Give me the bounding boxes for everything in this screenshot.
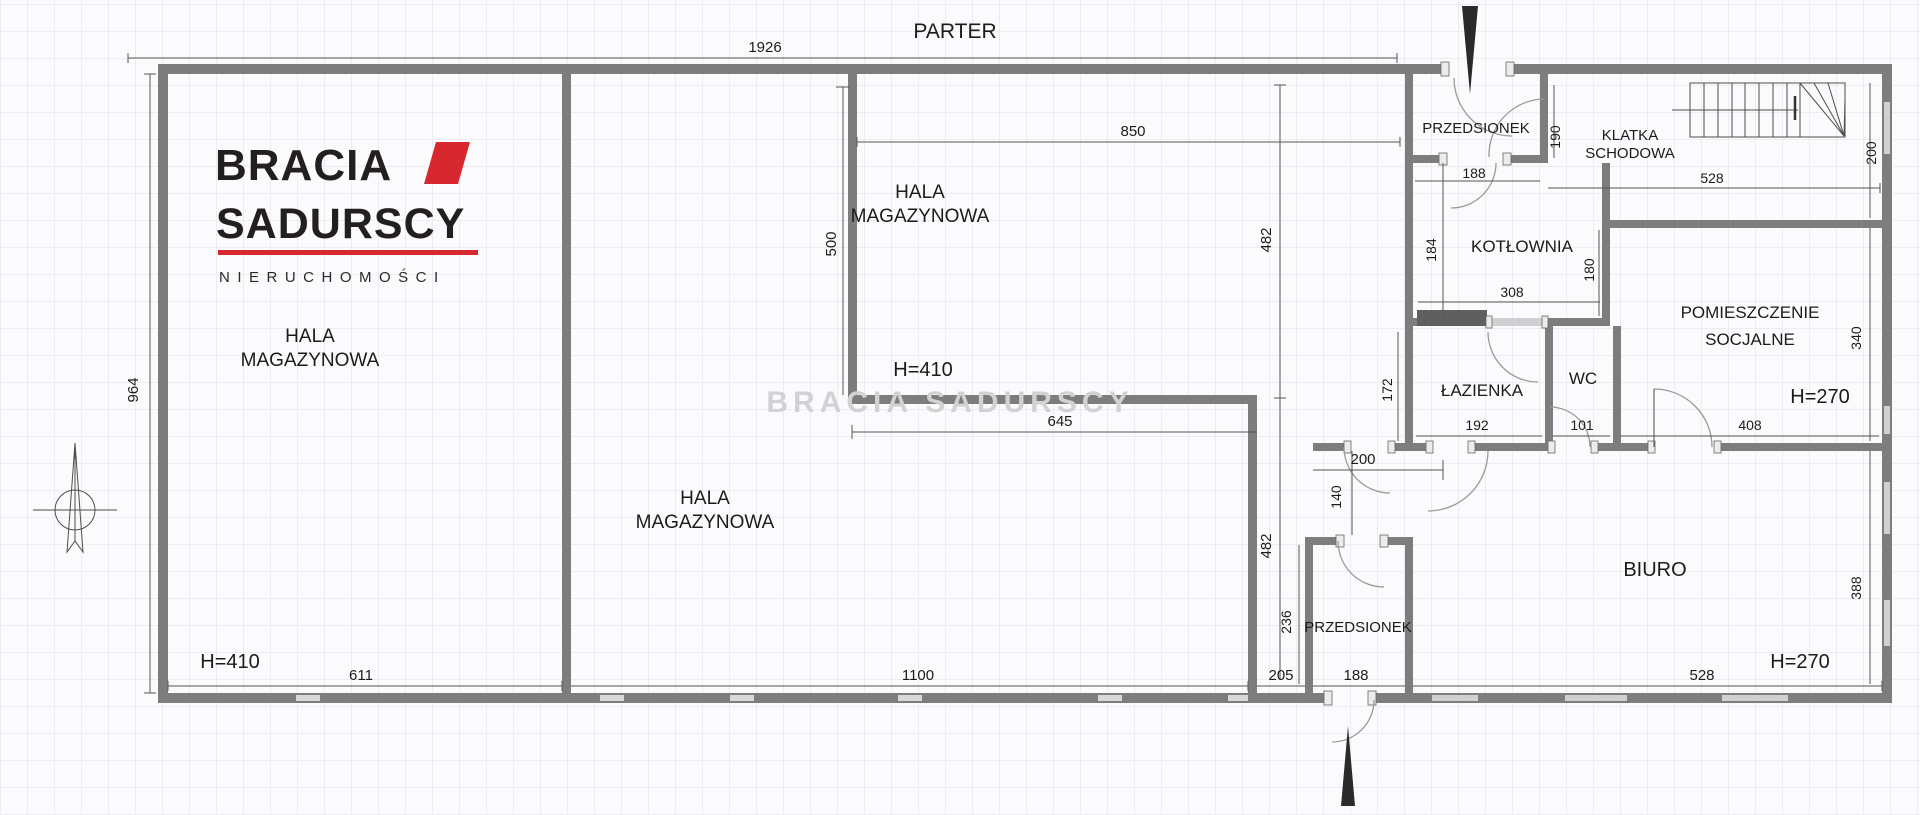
chimney-block <box>1417 310 1487 326</box>
logo-line1: BRACIA <box>215 141 392 190</box>
room-label-hala1-line2: MAGAZYNOWA <box>241 350 380 371</box>
dim-kotlownia-height: 184 <box>1423 238 1439 262</box>
room-label-przedsionek-dolny: PRZEDSIONEK <box>1304 619 1412 636</box>
dim-klatka-width: 528 <box>1700 170 1724 186</box>
agency-logo: BRACIA SADURSCY NIERUCHOMOŚCI <box>215 141 478 286</box>
dim-hala1-bottom: 611 <box>349 667 373 684</box>
room-label-klatka-line1: KLATKA <box>1602 127 1658 144</box>
dim-przedsionek-dolny-width: 188 <box>1343 667 1368 684</box>
dim-kotlownia-width: 308 <box>1500 284 1524 300</box>
room-label-hala3-line2: MAGAZYNOWA <box>636 512 775 533</box>
height-label-biuro: H=270 <box>1770 651 1830 673</box>
dim-passage-bottom: 205 <box>1268 667 1293 684</box>
dim-korytarz-height: 140 <box>1328 485 1344 509</box>
height-label-hala1: H=410 <box>200 651 260 673</box>
dim-pomieszczenie-height: 340 <box>1848 326 1864 350</box>
dim-biuro-width: 528 <box>1689 667 1714 684</box>
room-label-hala1-line1: HALA <box>285 326 335 347</box>
floor-plan: BRACIA SADURSCY PARTER BRACIA SADURSCY N… <box>0 0 1920 815</box>
dim-korytarz-width: 200 <box>1350 451 1375 468</box>
dim-klatka-height: 200 <box>1863 141 1879 165</box>
entrance-arrow-top <box>1462 6 1478 94</box>
dim-total-width: 1926 <box>748 39 781 56</box>
logo-red-mark <box>424 142 470 184</box>
dim-kotlownia-right: 180 <box>1581 258 1597 282</box>
room-label-wc: WC <box>1569 369 1597 388</box>
room-label-hala2-line2: MAGAZYNOWA <box>851 206 990 227</box>
dim-przedsionek-gorny-height: 190 <box>1547 125 1563 149</box>
dim-right-upper: 482 <box>1258 227 1275 252</box>
room-label-kotlownia: KOTŁOWNIA <box>1471 237 1574 256</box>
room-label-hala2-line1: HALA <box>895 182 945 203</box>
watermark-text: BRACIA SADURSCY <box>766 386 1133 419</box>
dim-lazienka-height: 172 <box>1379 378 1395 402</box>
logo-underline <box>218 250 478 255</box>
height-label-hala2: H=410 <box>893 359 953 381</box>
dim-hala2-top: 850 <box>1120 123 1145 140</box>
room-label-biuro: BIURO <box>1623 559 1686 581</box>
logo-line2: SADURSCY <box>216 200 465 248</box>
room-label-przedsionek-gorny: PRZEDSIONEK <box>1422 120 1530 137</box>
dim-hala3-bottom: 1100 <box>902 667 934 684</box>
dim-hala3-top: 645 <box>1047 413 1072 430</box>
room-label-klatka-line2: SCHODOWA <box>1585 145 1674 162</box>
dim-przedsionek-gorny-width: 188 <box>1462 165 1486 181</box>
dim-lazienka-width: 192 <box>1465 417 1489 433</box>
dim-pomieszczenie-width: 408 <box>1738 417 1762 433</box>
room-label-lazienka: ŁAZIENKA <box>1441 381 1524 400</box>
dim-left-height: 964 <box>125 377 142 402</box>
page-title: PARTER <box>913 20 996 43</box>
compass-icon <box>33 443 117 552</box>
door-arcs <box>1332 78 1712 742</box>
room-label-hala3-line1: HALA <box>680 488 730 509</box>
entrance-arrow-bottom <box>1341 726 1355 806</box>
logo-line3: NIERUCHOMOŚCI <box>219 268 446 286</box>
staircase <box>1672 83 1845 137</box>
room-label-pomieszczenie-line2: SOCJALNE <box>1705 330 1795 349</box>
dim-right-lower: 482 <box>1258 533 1275 558</box>
dim-wc-width: 101 <box>1570 417 1594 433</box>
dim-przedsionek-dolny-height: 236 <box>1278 610 1294 634</box>
dim-biuro-height: 388 <box>1848 576 1864 600</box>
dim-hala2-left: 500 <box>823 231 840 256</box>
room-label-pomieszczenie-line1: POMIESZCZENIE <box>1681 303 1820 322</box>
height-label-pomieszczenie: H=270 <box>1790 386 1850 408</box>
